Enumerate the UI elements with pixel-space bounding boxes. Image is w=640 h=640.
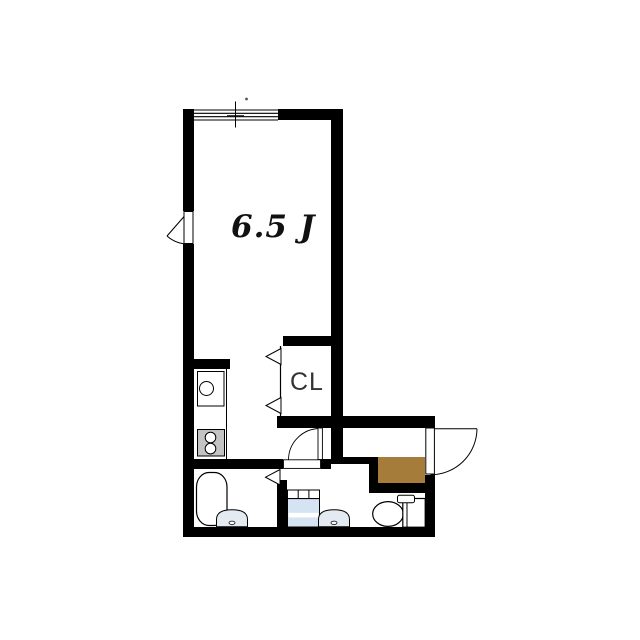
washing-machine-lid-band <box>289 513 319 518</box>
closet-fold-triangle-top <box>266 349 281 365</box>
toilet <box>373 495 425 527</box>
entry-door-leaf <box>426 428 435 474</box>
washbasin-1-drain-icon <box>229 521 235 524</box>
dot-mark <box>245 98 248 101</box>
genkan-step <box>378 457 425 483</box>
wall-kitchen-bottom <box>183 459 283 469</box>
sink-faucet-icon <box>200 382 214 396</box>
washing-machine-panel <box>288 490 320 499</box>
kitchen <box>198 369 227 459</box>
wall-mid-band <box>277 416 435 428</box>
wall-kitchen-bottom-east <box>321 459 331 469</box>
kitchen-door-leaf <box>318 428 322 460</box>
toilet-handle <box>398 495 415 502</box>
closet-fold-triangle-bottom <box>266 398 281 414</box>
wall-closet-top <box>283 336 331 346</box>
wall-left-upper <box>183 109 194 211</box>
wall-left-lower <box>183 244 194 537</box>
closet-bifold-door <box>266 346 281 416</box>
wall-kitchen-stub <box>183 359 230 369</box>
closet-label: CL <box>290 368 324 396</box>
balcony-door <box>167 212 193 245</box>
bathroom-folding-door <box>266 470 281 486</box>
kitchen-hall-door <box>284 428 323 468</box>
stove-burner-icon-bottom <box>205 443 216 454</box>
entry-door <box>426 428 477 475</box>
wall-genkan-bottom <box>369 483 425 493</box>
toilet-bowl <box>373 502 404 527</box>
wall-bottom <box>183 527 435 537</box>
stove-burner-icon-top <box>205 432 216 443</box>
floorplan-canvas: 6.5 J CL <box>0 0 640 640</box>
balcony-door-leaf <box>184 212 193 244</box>
room-size-label: 6.5 J <box>231 209 317 245</box>
washroom <box>288 490 350 527</box>
entry-door-swing-arc <box>431 429 478 475</box>
floorplan-drawing: 6.5 J CL <box>0 0 640 640</box>
kitchen-door-threshold <box>284 460 321 469</box>
wall-bath-partition <box>277 480 287 527</box>
washbasin-2-drain-icon <box>331 521 337 524</box>
bathroom <box>197 473 248 527</box>
kitchen-door-swing-arc <box>289 429 321 461</box>
window <box>193 102 278 128</box>
wall-right-main <box>331 109 343 464</box>
